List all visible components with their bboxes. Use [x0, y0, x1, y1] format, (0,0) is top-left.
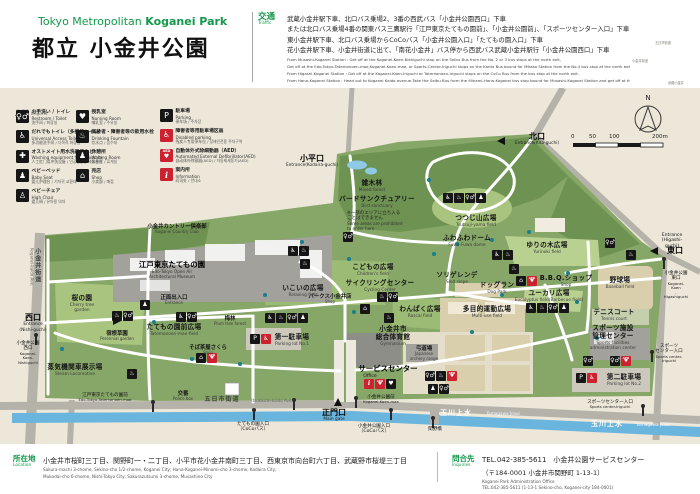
traffic-line-ja: または北口バス乗場4番の関東バス三鷹駅行「江戸東京たてもの園前」、「小金井公園前…: [287, 24, 632, 34]
disabled-parking-icon: ♿: [261, 334, 271, 344]
legend-item-ot: 婴儿护理台 / 기저귀 교환대: [32, 180, 77, 185]
busstop-koganei-koen-higashiguchi: 小金井公園 東口Koganei-Koen -Higashiguchi: [664, 271, 688, 300]
aed-icon: AED♥: [375, 379, 385, 389]
drinking-fountain-dot: [300, 240, 304, 244]
traffic-line-en: Get off at the Edo-Tokyo-Tatemonoen-mae,…: [287, 64, 630, 71]
label-en: Entrance: [161, 301, 188, 306]
wheelchair-icon: ♿: [16, 130, 29, 143]
traffic-heading: 交通 Traffic: [258, 13, 275, 27]
label-en: Parking lot No.1: [275, 342, 309, 347]
traffic-heading-en: Traffic: [258, 22, 275, 27]
busstop-koganei-koen-mae: 小金井公園前Koganei-Koen-mae: [363, 395, 399, 405]
minimap-label: 武蔵小金井: [668, 80, 684, 85]
label-plum-tree-forest: 梅林Plum tree forest: [214, 316, 246, 327]
label-ja: ※一部のエリアに立ち入る ことはできません: [347, 211, 403, 222]
label-koganei-country-club: 小金井カントリー倶楽部Koganei Country Club: [147, 224, 206, 235]
drinking-icon: ♨: [127, 369, 137, 379]
label-ja: 桜の園: [70, 295, 94, 303]
legend-item-text: 休憩所Waiting Room休息室 / 휴게실: [92, 150, 121, 165]
label-en: Fuwa-Fuwa dome: [443, 243, 491, 248]
label-edo-tokyo-museum: 江戸東京たてもの園Edo-Tokyo Open Air Architectura…: [139, 261, 205, 280]
label-eucalyptus-field: ユーカリ広場Eucalyptus field(Barbecue field): [515, 290, 584, 303]
label-en: Baseball field: [606, 285, 635, 290]
facility-icon-cluster: ♟: [140, 300, 150, 310]
label-en: Sled slope: [436, 280, 477, 285]
label-en: Tatemonoen-mae-field: [147, 332, 202, 337]
label-main-gate: 正門口Main gate: [322, 408, 346, 423]
legend-item-text: 高齢者・障害者等の飲用水栓Drinking Fountain饮水点 / 음수대: [92, 130, 154, 145]
waiting-icon: ♟: [76, 150, 89, 163]
label-ja: Tamagawa Josui: [636, 423, 669, 428]
facility-icon-cluster: P♿: [250, 334, 271, 344]
label-ja: 野球場: [606, 277, 635, 285]
aed-icon: AED♥: [447, 371, 457, 381]
label-ja: 五日市街道: [204, 396, 239, 403]
shop-icon: ⌂: [516, 276, 526, 286]
drinking-icon: ♨: [76, 130, 89, 143]
label-ja: 小金井街道: [34, 248, 41, 286]
label-en: Edo-Tokyo-Tatemonoen-mae: [78, 398, 131, 402]
facility-icon-cluster: ♨: [300, 259, 310, 269]
toilet-icon: ♀♂: [287, 313, 297, 323]
facility-icon-cluster: ♀♂♨AED♥: [425, 371, 457, 381]
label-ja: たてもの園前広場: [147, 324, 202, 332]
inquiries-heading-en: Inquiries: [452, 464, 475, 469]
traffic-line-en: From Hana-Koganei Station : Head out to …: [287, 78, 630, 85]
facility-icon-cluster: ⌂: [360, 304, 370, 314]
compass-north-label: N: [645, 94, 650, 102]
label-ja: 関野橋: [428, 427, 442, 432]
scale-tick: 200m: [652, 134, 668, 140]
park-map-poster: N 小金井カントリー倶楽部Koganei Country Club小金井街道Ko…: [0, 0, 700, 494]
aed-icon: AED♥: [527, 276, 537, 286]
drinking-fountain-dot: [352, 310, 356, 314]
drinking-icon: ♨: [436, 371, 446, 381]
label-en: Tsutsuji-yama field: [455, 223, 496, 228]
label-ja: ユーカリ広場: [515, 290, 584, 298]
drinking-fountain-dot: [238, 362, 242, 366]
drinking-icon: ♨: [384, 313, 394, 323]
baby-bed-icon: ♟: [16, 169, 29, 182]
legend-item-ot: 自动体外除颤器(AED) / 자동제세동기(AED): [176, 159, 256, 164]
label-en: Sports center-Iriguchi: [587, 405, 633, 409]
wheelchair-icon: ♿: [288, 246, 298, 256]
label-en: Plum tree forest: [214, 322, 246, 327]
label-entrance-kita-guchi: 北口Entrance(Kita-guchi): [515, 132, 559, 147]
label-en: Koganei Country Club: [147, 230, 206, 235]
park-title-japanese: 都立 小金井公園: [32, 31, 210, 63]
toilet-icon: ♀♂: [548, 303, 558, 313]
gate-marker-main: [334, 398, 342, 406]
label-en: Japanese archery range: [410, 352, 438, 361]
scale-tick: 100: [609, 134, 620, 140]
parking-icon: P: [576, 373, 586, 383]
bus-stop-pole-icon: [355, 399, 357, 408]
bus-stop-pole-icon: [390, 411, 392, 420]
legend-item-text: ベビーチェアHigh Chair婴儿椅 / 유아용 의자: [32, 189, 66, 204]
label-en: Sports facilities administration center: [590, 341, 636, 351]
aed-icon: AED♥: [160, 149, 173, 162]
minimap-label: 小金井街道: [632, 58, 648, 63]
label-en: Steam Locomotive: [47, 372, 102, 377]
waiting-icon: ♟: [476, 193, 486, 203]
legend-item-text: 自動体外式除細動器（AED）Automated External Defibri…: [176, 149, 256, 164]
label-en: Mixed forest: [359, 188, 385, 193]
label-en: Sports center- Iriguchi: [655, 355, 683, 364]
legend-item-info: i案内所Information问讯处 / 안내소: [160, 168, 230, 183]
label-en: Main gate: [322, 417, 346, 422]
label-en: Rascal field: [399, 314, 440, 319]
waiting-icon: ♟: [559, 303, 569, 313]
label-itsukaichi-kaido-en: Itsukaichi-kaido Ave.: [251, 399, 292, 404]
drinking-icon: ♨: [299, 246, 309, 256]
drinking-fountain-dot: [190, 357, 194, 361]
label-ja: スポーツ施設 管理センター: [590, 325, 636, 341]
location-heading: 所在地 Location: [13, 455, 36, 469]
scale-tick: 0: [571, 134, 575, 140]
legend-item-text: 授乳室Nursing Room哺乳室 / 수유실: [92, 110, 121, 125]
facility-icon-cluster: ♨: [626, 250, 636, 260]
label-en: Perennial garden: [100, 337, 134, 342]
legend-item-text: 案内所Information问讯处 / 안내소: [176, 168, 202, 183]
legend-item-drinking: ♨高齢者・障害者等の飲用水栓Drinking Fountain饮水点 / 음수대: [76, 130, 146, 145]
label-relaxing-field: いこいの広場Relaxing field: [282, 285, 323, 298]
bus-stop-pole-icon: [253, 411, 255, 420]
label-prohibited-note: ※一部のエリアに立ち入る ことはできませんSome areas are proh…: [347, 211, 403, 232]
drinking-fountain-dot: [432, 252, 436, 256]
label-en: Tennis court: [593, 317, 634, 322]
legend-item-high-chair: ♙ベビーチェアHigh Chair婴儿椅 / 유아용 의자: [16, 189, 86, 204]
label-en: Multi-use field: [463, 314, 511, 319]
label-steam-locomotive: 蒸気機関車展示場Steam Locomotive: [47, 364, 102, 377]
label-multi-use-field: 多目的運動広場Multi-use field: [463, 306, 511, 319]
gate-marker-nishi: [113, 317, 121, 325]
facility-icon-cluster: ♀♂AED♥: [610, 356, 631, 366]
label-dog-park: ドッグランDog Park: [480, 282, 514, 295]
inquiries-address-ja: （〒184-0001 小金井市関野町 1-13-1）: [482, 467, 644, 477]
legend-item-ot: 哺乳室 / 수유실: [92, 121, 121, 126]
inquiries-heading: 問合先 Inquiries: [452, 455, 475, 469]
footer-divider: [437, 452, 438, 482]
label-en: Children's field: [352, 272, 393, 277]
facility-icon-cluster: iAED♥♥: [364, 379, 396, 389]
label-en: Koganei-Koen -Higashiguchi: [664, 282, 688, 300]
label-cherry-tree-garden: 桜の園Cherry tree garden: [70, 295, 94, 313]
parking-icon: P: [250, 334, 260, 344]
legend-item-text: 駐車場Parking停车场 / 주차장: [176, 109, 202, 124]
legend-item-waiting: ♟休憩所Waiting Room休息室 / 휴게실: [76, 150, 146, 165]
legend-item-ot: 洗手间 / 화장실: [32, 121, 71, 126]
label-en: Koganei-Koen-mae: [363, 400, 399, 404]
facility-icon-cluster: ♨: [509, 264, 519, 274]
legend-column-3: P駐車場Parking停车场 / 주차장♿障害者等用駐車場区画Disabled …: [160, 109, 230, 188]
label-ja: サービスセンター: [358, 365, 417, 374]
location-address-en-line2: Mukodai-cho 6-chome, Nishi-Tokyo City; S…: [43, 474, 277, 481]
legend-item-ot: 问讯处 / 안내소: [176, 179, 202, 184]
label-service-center: サービスセンター: [358, 365, 417, 374]
label-ja: いこいの広場: [282, 285, 323, 293]
label-perennial-garden: 宿根草園Perennial garden: [100, 331, 134, 342]
toilet-icon: ♀♂: [583, 356, 593, 366]
scale-tick: 50: [589, 134, 596, 140]
legend-item-ot: 残疾人专用停车位 / 장애인전용 주차구역: [176, 140, 243, 145]
label-ja: 雑木林: [359, 180, 385, 188]
label-en: Shop: [309, 300, 352, 305]
header: Tokyo Metropolitan Koganei Park 都立 小金井公園…: [0, 0, 700, 88]
label-soba-chaya-sakura: そば茶屋さくらShop: [189, 345, 227, 356]
label-en: Eucalyptus field(Barbecue field): [515, 298, 584, 303]
nursing-icon: ♥: [76, 110, 89, 123]
label-ja: Itsukaichi-kaido Ave.: [251, 399, 292, 404]
label-ja: 蒸気機関車展示場: [47, 364, 102, 372]
busstop-koganei-koen-nishiguchi: 小金井公園 西口Koganei- Koen- Nishiguchi: [17, 341, 40, 365]
legend-item-text: お手洗い / トイレRestroom / Toilet洗手间 / 화장실: [32, 110, 71, 125]
label-baseball-field: 野球場Baseball field: [606, 277, 635, 290]
label-en: Yurinoki field: [526, 250, 567, 255]
legend-item-text: 障害者等用駐車場区画Disabled parking残疾人专用停车位 / 장애인…: [176, 129, 243, 144]
toilet-icon: ♀♂: [465, 193, 475, 203]
label-ja: こどもの広場: [352, 264, 393, 272]
label-en: Cycling Center: [346, 288, 415, 293]
label-bird-sanctuary: バードサンクチュアリーBird sanctuary: [339, 196, 415, 209]
waiting-icon: ♟: [298, 313, 308, 323]
busstop-sports-center-iriguchi-east: スポーツ センター入口Sports center- Iriguchi: [655, 344, 683, 364]
gate-marker-higashi: [650, 247, 658, 255]
label-tamagawa-josui-ja-2: 玉川上水: [591, 420, 623, 428]
toilet-icon: ♀♂: [123, 311, 133, 321]
facility-icon-cluster: ♀♂: [605, 238, 615, 248]
drinking-fountain-dot: [527, 230, 531, 234]
wheelchair-icon: ♿: [265, 313, 275, 323]
footer: 所在地 Location 小金井市桜町三丁目、関野町一・二丁目、小平市花小金井南…: [0, 444, 700, 494]
label-ja: 多目的運動広場: [463, 306, 511, 314]
label-ja: テニスコート: [593, 309, 634, 317]
label-en: Gymnasium: [376, 342, 410, 347]
facility-icon-cluster: ♨: [127, 369, 137, 379]
wheelchair-icon: ♿: [526, 303, 536, 313]
label-ja: ドッグラン: [480, 282, 514, 290]
label-ja: 玉川上水: [591, 420, 623, 428]
label-ja: サイクリングセンター: [346, 280, 415, 288]
toilet-icon: ♀♂: [425, 371, 435, 381]
label-ja: ソリゲレンデ: [436, 272, 477, 280]
label-tennis-court: テニスコートTennis court: [593, 309, 634, 322]
label-sled-slope: ソリゲレンデSled slope: [436, 272, 477, 285]
legend-item-ja: お手洗い / トイレ: [32, 110, 71, 116]
toilet-icon: ♀♂: [187, 312, 197, 322]
label-en: Shop: [540, 283, 593, 288]
waiting-icon: ♟: [140, 300, 150, 310]
busstop-edo-tokyo-tatemonoen-mae: 江戸東京たてもの園前Edo-Tokyo-Tatemonoen-mae: [78, 393, 131, 403]
facility-icon-cluster: ♿♨: [288, 246, 309, 256]
label-ja: バードサンクチュアリー: [339, 196, 415, 204]
label-ja: 第一駐車場: [275, 334, 309, 342]
traffic-line-en: From Higashi-Koganei Station : Get off a…: [287, 71, 630, 78]
label-tsutsuji-yama-field: つつじ山広場Tsutsuji-yama field: [455, 215, 496, 228]
legend-column-2: ♥授乳室Nursing Room哺乳室 / 수유실♨高齢者・障害者等の飲用水栓D…: [76, 110, 146, 189]
toilet-icon: ♀♂: [343, 232, 353, 242]
label-en: Shop: [189, 351, 227, 356]
label-itsukaichi-kaido-ja: 五日市街道: [204, 396, 239, 403]
label-en: Koganei-kaido Ave.: [29, 248, 34, 286]
info-icon: i: [364, 379, 374, 389]
busstop-sports-center-iriguchi-south: スポーツセンター入口Sports center-Iriguchi: [587, 400, 633, 410]
label-en: Entrance(Kodaira-guchi): [286, 163, 338, 168]
location-address-en: Sakura-machi 3-chome, Sekino-cho 1/2-cho…: [43, 467, 277, 480]
legend-item-text: ベビーベッドBaby Seat婴儿护理台 / 기저귀 교환대: [32, 169, 77, 184]
label-ja: つつじ山広場: [455, 215, 496, 223]
toilet-icon: ♀♂: [388, 292, 398, 302]
facility-icon-cluster: ♿♨♀♂♟: [265, 313, 308, 323]
drinking-icon: ♨: [503, 250, 513, 260]
legend-item-ja: 高齢者・障害者等の飲用水栓: [92, 130, 154, 136]
toilet-icon: ♀♂: [605, 238, 615, 248]
drinking-fountain-dot: [263, 293, 267, 297]
label-gymnasium: 小金井市 総合体育館Gymnasium: [376, 326, 410, 347]
legend-item-ot: 停车场 / 주차장: [176, 120, 202, 125]
bus-stop-pole-icon: [663, 260, 665, 269]
busstop-sekino-bashi: 関野橋: [428, 427, 442, 432]
busstop-koganei-koen-iriguchi: 小金井公園入口 （CoCoバス）: [358, 424, 390, 435]
facility-icon-cluster: ♿♨: [492, 250, 513, 260]
title-en-bold: Koganei Park: [145, 15, 227, 28]
drinking-icon: ♨: [509, 264, 519, 274]
facility-icon-cluster: ♟♀♂: [428, 384, 449, 394]
inquiries-en-line2: TEL.042-385-5611 (1-13-1 Sekino-cho, Kog…: [482, 485, 644, 491]
facility-icon-cluster: ♀♂: [343, 232, 353, 242]
label-entrance-kodaira-guchi: 小平口Entrance(Kodaira-guchi): [286, 154, 338, 169]
label-parking-lot-2: 第二駐車場Parking lot No.2: [607, 374, 641, 387]
drinking-icon: ♨: [377, 292, 387, 302]
facility-icon-cluster: ♨♀♂: [377, 292, 398, 302]
label-ja: B.B.Q.ショップ: [540, 275, 593, 283]
label-ja: 東口: [667, 246, 683, 255]
label-en: Koganei- Koen- Nishiguchi: [17, 352, 40, 365]
label-ja: 第二駐車場: [607, 374, 641, 382]
label-en: Entrance (Nishi-guchi): [19, 322, 46, 332]
label-en: Police box: [173, 397, 193, 402]
label-museum-entrance: 正面出入口Entrance: [161, 295, 188, 306]
drinking-icon: ♨: [276, 313, 286, 323]
legend-item-ot: 小卖部 / 매점: [92, 180, 114, 185]
header-divider: [252, 12, 253, 82]
toilet-icon: ♀♂: [439, 384, 449, 394]
bus-stop-pole-icon: [642, 407, 644, 416]
toilet-icon: ♀♂: [16, 110, 29, 123]
label-archery-range: 弓道場Japanese archery range: [410, 346, 438, 362]
ostomate-icon: ✚: [16, 150, 29, 163]
label-en: Some areas are prohibited to enter here: [347, 222, 403, 232]
label-koganei-kaido: 小金井街道Koganei-kaido Ave.: [29, 248, 41, 286]
busstop-tatemonoen-iriguchi: たてもの園入口 （CoCoバス）: [237, 422, 269, 433]
legend-item-disabled-parking: ♿障害者等用駐車場区画Disabled parking残疾人专用停车位 / 장애…: [160, 129, 230, 144]
facility-icon-cluster: P♿: [576, 373, 597, 383]
disabled-parking-icon: ♿: [587, 373, 597, 383]
label-sports-admin-center: スポーツ施設 管理センターSports facilities administr…: [590, 325, 636, 351]
traffic-directions-japanese: 武蔵小金井駅下車、北口バス乗場2、3番の西武バス「小金井公園西口」下車または北口…: [287, 14, 632, 56]
label-en: Edo-Tokyo Open Air Architectural Museum: [139, 270, 205, 280]
drinking-fountain-dot: [470, 330, 474, 334]
label-en: Dog Park: [480, 290, 514, 295]
traffic-line-ja: 花小金井駅下車、小金井街道に出て、「南花小金井」バス停から西武バス武蔵小金井駅行…: [287, 45, 632, 55]
drinking-icon: ♨: [626, 250, 636, 260]
drinking-fountain-dot: [427, 178, 431, 182]
wheelchair-icon: ♿: [443, 193, 453, 203]
legend-item-ot: 休息室 / 휴게실: [92, 160, 121, 165]
facility-icon-cluster: ♀♂: [583, 356, 593, 366]
toilet-icon: ♀♂: [610, 356, 620, 366]
drinking-icon: ♨: [454, 193, 464, 203]
high-chair-icon: ♙: [16, 189, 29, 202]
label-ja: 小金井市 総合体育館: [376, 326, 410, 342]
bus-stop-pole-icon: [651, 353, 653, 362]
nursing-icon: ♥: [386, 379, 396, 389]
aed-icon: AED♥: [621, 356, 631, 366]
facility-icon-cluster: ♿♨♀♂♟: [526, 303, 569, 313]
label-en: Bird sanctuary: [339, 204, 415, 209]
facility-icon-cluster: ♿♨♀♂♟: [443, 193, 486, 203]
legend-item-ot: 饮水点 / 음수대: [92, 141, 154, 146]
label-ja: 小金井公園入口 （CoCoバス）: [358, 424, 390, 435]
label-en: Entrance(Kita-guchi): [515, 141, 559, 146]
park-title-english: Tokyo Metropolitan Koganei Park: [38, 15, 227, 28]
gate-marker-kita: [497, 137, 505, 145]
inquiries-en: Koganei Park Administration Office TEL.0…: [482, 479, 644, 491]
label-ja: ゆりの木広場: [526, 242, 567, 250]
legend-item-text: 売店Shop小卖部 / 매점: [92, 169, 114, 184]
label-tamagawa-josui-en-2: Tamagawa Josui: [636, 423, 669, 428]
label-service-center-office: Office: [363, 374, 376, 379]
label-entrance-nishiguchi: 西口Entrance (Nishi-guchi): [19, 313, 46, 333]
label-bbq-shop: B.B.Q.ショップShop: [540, 275, 593, 288]
minimap-label: 五日市街道: [655, 40, 671, 45]
parking-icon: P: [160, 109, 173, 122]
bus-stop-pole-icon: [152, 403, 154, 412]
label-ja: 玉川上水: [440, 409, 472, 417]
title-en-regular: Tokyo Metropolitan: [38, 15, 145, 28]
info-icon: i: [160, 168, 173, 181]
traffic-line-ja: 武蔵小金井駅下車、北口バス乗場2、3番の西武バス「小金井公園西口」下車: [287, 14, 632, 24]
label-cycling-center: サイクリングセンターCycling Center: [346, 280, 415, 293]
shop-icon: ⌂: [360, 304, 370, 314]
label-entrance-higashi-guchi: 東口: [667, 246, 683, 255]
label-rascal-field: わんぱく広場Rascal field: [399, 306, 440, 319]
drinking-fountain-dot: [347, 257, 351, 261]
location-address-ja: 小金井市桜町三丁目、関野町一・二丁目、小平市花小金井南町三丁目、西東京市向台町六…: [43, 456, 433, 466]
facility-icon-cluster: ♿♀♂: [176, 312, 197, 322]
location-heading-en: Location: [13, 464, 36, 469]
label-tatemonoen-mae-field: たてもの園前広場Tatemonoen-mae-field: [147, 324, 202, 337]
inquiries-tel-ja: TEL.042-385-5611 小金井公園サービスセンター: [482, 455, 644, 465]
legend-item-ot: 婴儿椅 / 유아용 의자: [32, 200, 66, 205]
label-mixed-forest: 雑木林Mixed forest: [359, 180, 385, 193]
label-en: Relaxing field: [282, 293, 323, 298]
label-ja: わんぱく広場: [399, 306, 440, 314]
label-tamagawa-josui-en-1: Tamagawa Josui: [486, 412, 519, 417]
legend-item-parking: P駐車場Parking停车场 / 주차장: [160, 109, 230, 124]
location-address-en-line1: Sakura-machi 3-chome, Sekino-cho 1/2-cho…: [43, 467, 277, 474]
label-tamagawa-josui-ja-1: 玉川上水: [440, 409, 472, 417]
label-en: Parking lot No.2: [607, 382, 641, 387]
label-ja: ふわふわドーム: [443, 235, 491, 243]
label-police-box: 交番Police box: [173, 391, 193, 402]
label-childrens-field: こどもの広場Children's field: [352, 264, 393, 277]
legend-item-shop: ⌂売店Shop小卖部 / 매점: [76, 169, 146, 184]
traffic-directions-english: From Musashi-Koganei Station : Get off a…: [287, 57, 630, 85]
drinking-icon: ♨: [537, 303, 547, 313]
disabled-parking-icon: ♿: [160, 129, 173, 142]
shop-icon: ⌂: [76, 169, 89, 182]
